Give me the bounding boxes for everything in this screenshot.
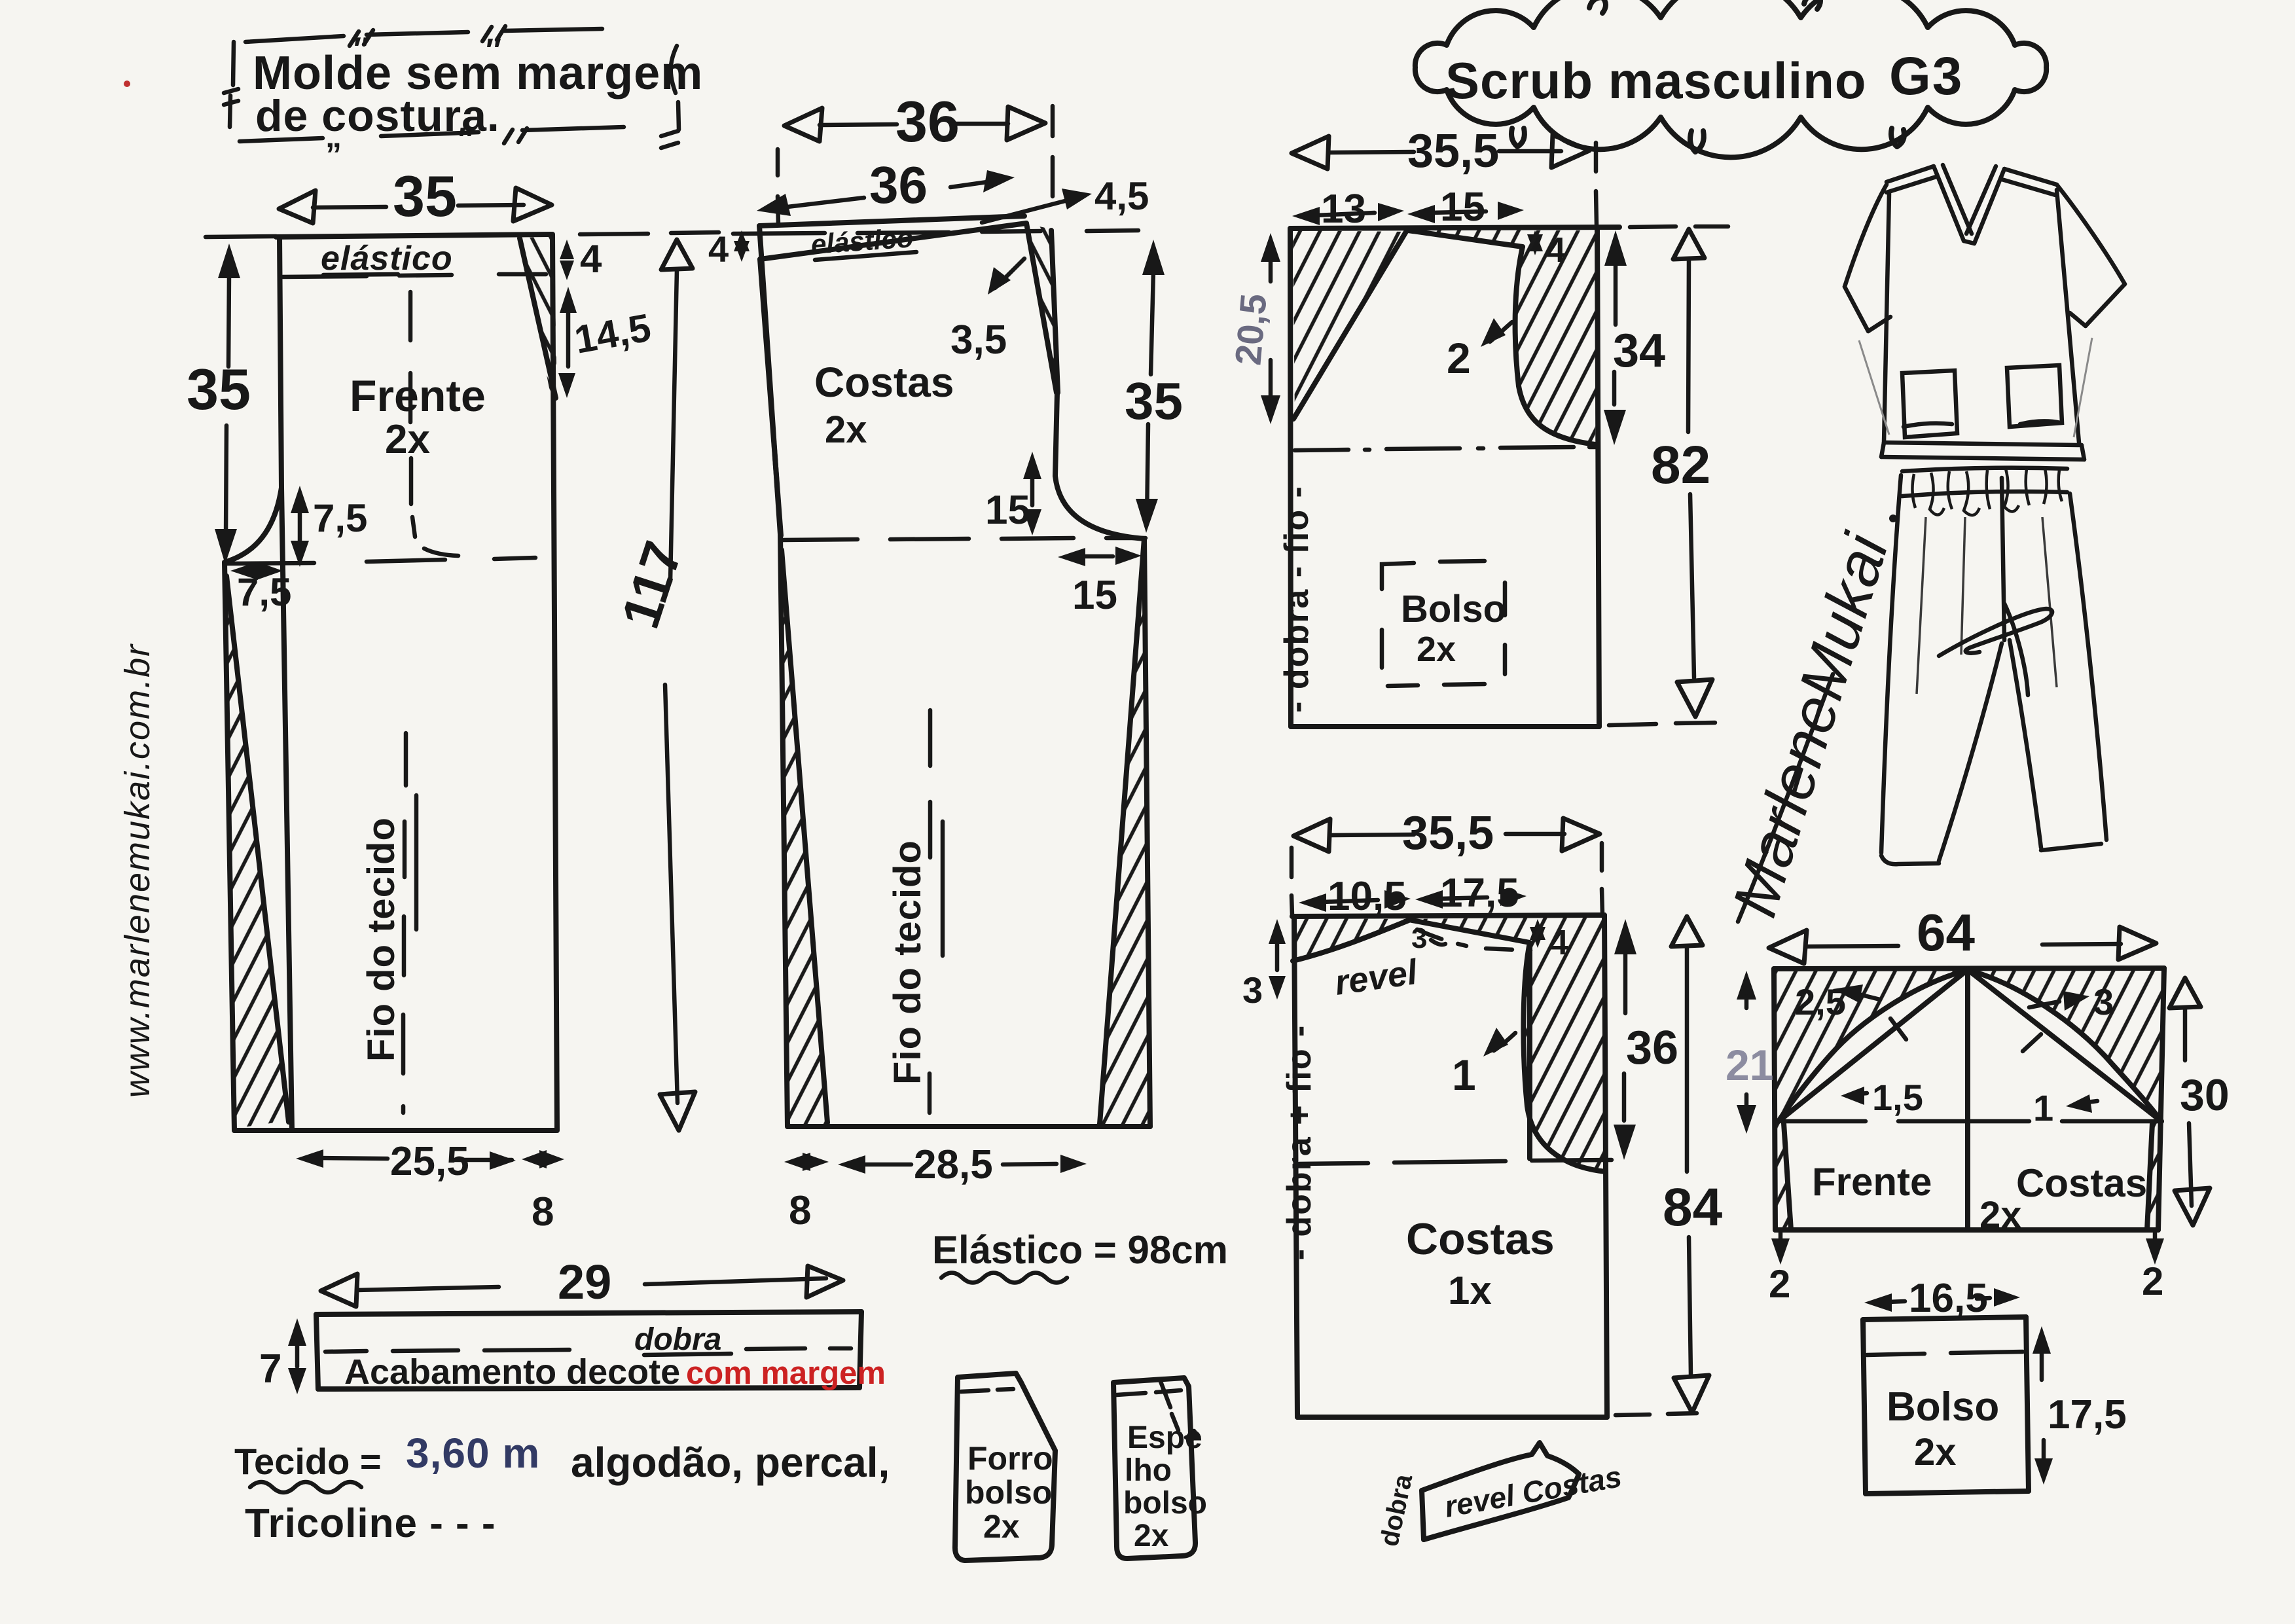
- svg-text:17,5: 17,5: [2048, 1392, 2127, 1437]
- svg-text:2x: 2x: [1914, 1431, 1957, 1473]
- svg-text:Fio do tecido: Fio do tecido: [886, 840, 929, 1085]
- svg-text:1x: 1x: [1448, 1269, 1492, 1312]
- svg-text:84: 84: [1663, 1178, 1723, 1237]
- svg-text:10,5: 10,5: [1328, 874, 1407, 919]
- svg-text:35: 35: [1125, 372, 1183, 430]
- svg-text:8: 8: [789, 1188, 811, 1233]
- svg-text:7: 7: [259, 1346, 281, 1392]
- svg-text:Scrub masculino: Scrub masculino: [1445, 52, 1867, 109]
- svg-text:1: 1: [1452, 1051, 1476, 1099]
- svg-text:- dobra - fio -: - dobra - fio -: [1278, 485, 1316, 713]
- svg-text:15: 15: [1440, 185, 1485, 230]
- svg-text:4,5: 4,5: [1094, 174, 1149, 218]
- svg-text:- dobra + fio -: - dobra + fio -: [1280, 1024, 1318, 1261]
- svg-text:15: 15: [985, 488, 1030, 533]
- svg-text:elástico: elástico: [321, 240, 453, 278]
- svg-text:64: 64: [1917, 903, 1975, 962]
- svg-text:Bolso: Bolso: [1401, 588, 1506, 630]
- svg-text:3,5: 3,5: [950, 317, 1007, 363]
- svg-text:2,5: 2,5: [1795, 981, 1846, 1022]
- svg-text:″: ″: [458, 121, 474, 158]
- svg-text:2: 2: [1447, 334, 1471, 382]
- svg-text:21: 21: [1726, 1041, 1773, 1089]
- svg-text:lho: lho: [1125, 1453, 1172, 1488]
- svg-text:2x: 2x: [1417, 630, 1456, 669]
- svg-text:Forro: Forro: [967, 1440, 1053, 1477]
- svg-text:16,5: 16,5: [1909, 1276, 1988, 1321]
- svg-text:G3: G3: [1889, 46, 1963, 106]
- svg-text:Elástico = 98cm: Elástico = 98cm: [932, 1228, 1228, 1272]
- svg-text:1: 1: [2033, 1087, 2053, 1128]
- svg-text:3: 3: [1242, 969, 1263, 1011]
- svg-text:82: 82: [1651, 435, 1710, 495]
- svg-text:″: ″: [486, 32, 501, 69]
- svg-text:15: 15: [1072, 573, 1117, 618]
- svg-text:2: 2: [1769, 1262, 1790, 1306]
- svg-text:4: 4: [580, 237, 602, 281]
- svg-text:7,5: 7,5: [237, 570, 291, 614]
- svg-text:2: 2: [2142, 1259, 2163, 1303]
- svg-text:17,5: 17,5: [1440, 871, 1519, 916]
- svg-text:com margem: com margem: [686, 1356, 886, 1391]
- svg-text:30: 30: [2180, 1070, 2230, 1120]
- svg-text:2x: 2x: [1134, 1519, 1169, 1553]
- svg-text:8: 8: [532, 1189, 554, 1235]
- svg-text:35,5: 35,5: [1402, 807, 1494, 859]
- svg-text:3: 3: [2093, 981, 2114, 1022]
- svg-text:35: 35: [187, 357, 251, 422]
- svg-text:Costas: Costas: [1406, 1214, 1555, 1264]
- svg-text:36: 36: [895, 89, 960, 154]
- svg-text:13: 13: [1321, 187, 1366, 232]
- svg-text:Fio do tecido: Fio do tecido: [360, 817, 403, 1062]
- svg-text:Costas: Costas: [814, 359, 954, 406]
- svg-text:bolso: bolso: [965, 1474, 1052, 1511]
- svg-text:35,5: 35,5: [1407, 125, 1499, 177]
- svg-text:″: ″: [353, 31, 369, 67]
- svg-text:2x: 2x: [385, 417, 430, 462]
- svg-text:2x: 2x: [1979, 1194, 2022, 1236]
- svg-text:4: 4: [708, 228, 729, 270]
- svg-text:www.marlenemukai.com.br: www.marlenemukai.com.br: [118, 643, 157, 1098]
- svg-text:Acabamento decote: Acabamento decote: [344, 1352, 680, 1392]
- svg-text:36: 36: [869, 156, 928, 214]
- svg-text:Tecido =: Tecido =: [234, 1441, 382, 1482]
- svg-text:34: 34: [1613, 325, 1665, 377]
- svg-text:20,5: 20,5: [1227, 292, 1274, 367]
- svg-text:Bolso: Bolso: [1887, 1384, 1999, 1430]
- svg-text:Frente: Frente: [350, 371, 486, 421]
- svg-text:35: 35: [393, 164, 457, 228]
- svg-text:3: 3: [1411, 922, 1427, 954]
- svg-text:7,5: 7,5: [313, 496, 367, 540]
- svg-text:1,5: 1,5: [1872, 1077, 1923, 1118]
- svg-text:28,5: 28,5: [914, 1142, 993, 1187]
- svg-text:2x: 2x: [825, 408, 867, 451]
- svg-text:Frente: Frente: [1812, 1160, 1932, 1204]
- svg-text:„: „: [325, 118, 342, 154]
- svg-text:Costas: Costas: [2016, 1161, 2147, 1205]
- svg-text:Tricoline - - -: Tricoline - - -: [245, 1501, 496, 1546]
- svg-text:bolso: bolso: [1123, 1486, 1207, 1521]
- svg-text:29: 29: [558, 1255, 611, 1309]
- svg-text:25,5: 25,5: [390, 1139, 469, 1184]
- svg-text:3,60 m: 3,60 m: [406, 1430, 540, 1477]
- svg-text:algodão, percal,: algodão, percal,: [571, 1439, 890, 1486]
- svg-text:2x: 2x: [983, 1508, 1020, 1545]
- svg-text:36: 36: [1626, 1022, 1678, 1074]
